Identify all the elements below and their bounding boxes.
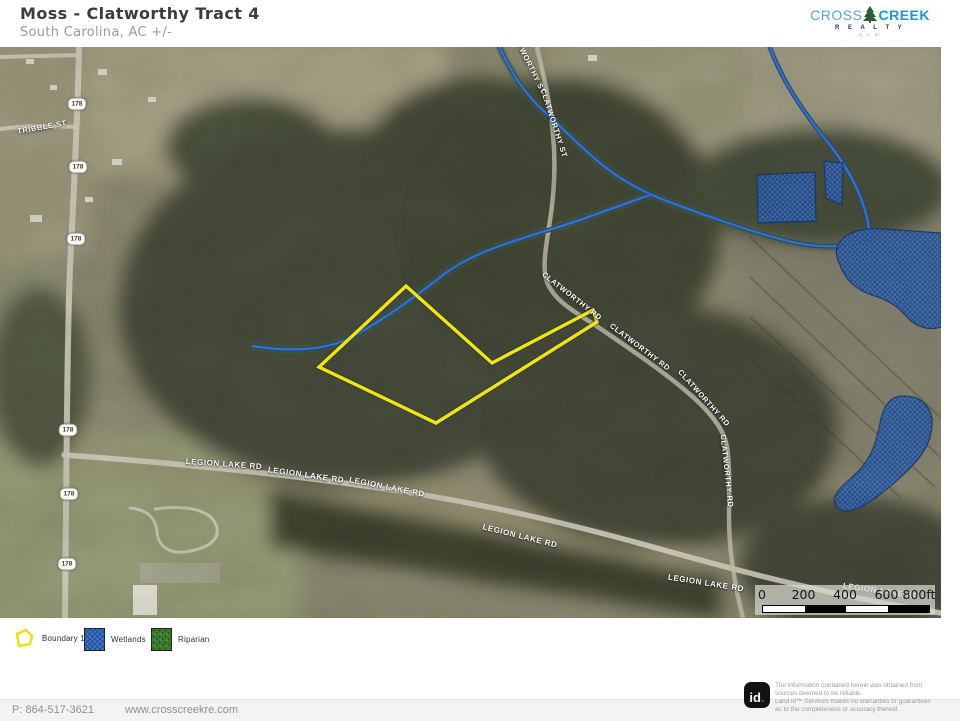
- road-label: CLATWORTHY RD: [676, 368, 732, 429]
- disclaimer-line: as to the completeness or accuracy there…: [775, 706, 931, 714]
- legend-item-riparian: Riparian: [151, 628, 209, 651]
- scale-segment: [805, 606, 847, 612]
- scale-tick: 600: [875, 587, 899, 602]
- legend-item-wetlands: Wetlands: [84, 628, 146, 651]
- riparian-swatch-icon: [151, 628, 172, 651]
- route-178-shield: 178: [60, 488, 79, 501]
- road-label: CLATWORTHY ST: [539, 87, 570, 158]
- scale-segment: [846, 606, 888, 612]
- legend-label-riparian: Riparian: [178, 635, 209, 644]
- logo-llc-text: L L C: [810, 33, 930, 38]
- route-178-shield: 178: [59, 424, 78, 437]
- land-id-text: id: [749, 690, 761, 705]
- disclaimer-line: The information contained herein was obt…: [775, 682, 931, 690]
- legend-label-wetlands: Wetlands: [111, 635, 146, 644]
- crosscreek-logo: CROSS CREEK R E A L T Y L L C: [810, 6, 930, 38]
- boundary-swatch-icon: [12, 628, 36, 649]
- road-label: TRIBBLE ST: [17, 118, 68, 136]
- scale-tick: 0: [758, 587, 766, 602]
- disclaimer-text: The information contained herein was obt…: [775, 682, 931, 714]
- road-label: CLATWORTHY RD: [719, 434, 736, 508]
- disclaimer-block: id. The information contained herein was…: [744, 682, 944, 714]
- header: Moss - Clatworthy Tract 4 South Carolina…: [0, 0, 960, 47]
- legend: Boundary 1 Wetlands Riparian: [0, 618, 960, 662]
- scale-tick: 200: [792, 587, 816, 602]
- disclaimer-line: Land id™ Services makes no warranties or…: [775, 698, 931, 706]
- legend-item-boundary: Boundary 1: [12, 628, 85, 649]
- page-subtitle: South Carolina, AC +/-: [20, 25, 172, 40]
- wetlands-swatch-icon: [84, 628, 105, 651]
- route-178-shield: 178: [58, 558, 77, 571]
- land-id-dot: .: [761, 690, 765, 705]
- road-label: LEGION LAKE RD: [348, 475, 425, 499]
- logo-word-cross: CROSS: [810, 8, 862, 22]
- phone-number: P: 864-517-3621: [12, 704, 94, 716]
- legend-label-boundary: Boundary 1: [42, 634, 85, 643]
- road-labels-layer: TRIBBLE STCLATWORTHY STCLATWORTHY STCLAT…: [0, 47, 941, 618]
- scale-tick: 400: [833, 587, 857, 602]
- disclaimer-line: sources deemed to be reliable.: [775, 690, 931, 698]
- website-url: www.crosscreekre.com: [125, 704, 238, 716]
- road-label: CLATWORTHY RD: [608, 321, 672, 372]
- logo-word-creek: CREEK: [878, 8, 930, 22]
- scale-tick: 800ft: [903, 587, 936, 602]
- pine-tree-icon: [863, 6, 877, 23]
- scale-segment: [763, 606, 805, 612]
- page-title: Moss - Clatworthy Tract 4: [20, 4, 260, 23]
- route-178-shield: 178: [68, 98, 87, 111]
- road-label: LEGION LAKE RD: [482, 522, 559, 549]
- road-label: LEGION LAKE RD: [667, 573, 744, 594]
- road-label: CLATWORTHY RD: [540, 270, 603, 322]
- scale-segment: [888, 606, 930, 612]
- scale-segments: [762, 605, 930, 613]
- land-id-logo: id.: [744, 682, 770, 708]
- road-label: LEGION LAKE RD: [267, 465, 344, 485]
- aerial-map: TRIBBLE STCLATWORTHY STCLATWORTHY STCLAT…: [0, 47, 941, 618]
- scale-bar: 0200400600800ft: [755, 585, 935, 615]
- logo-realty-text: R E A L T Y: [810, 25, 930, 31]
- route-178-shield: 178: [67, 233, 86, 246]
- route-178-shield: 178: [69, 161, 88, 174]
- road-label: LEGION LAKE RD: [185, 457, 262, 471]
